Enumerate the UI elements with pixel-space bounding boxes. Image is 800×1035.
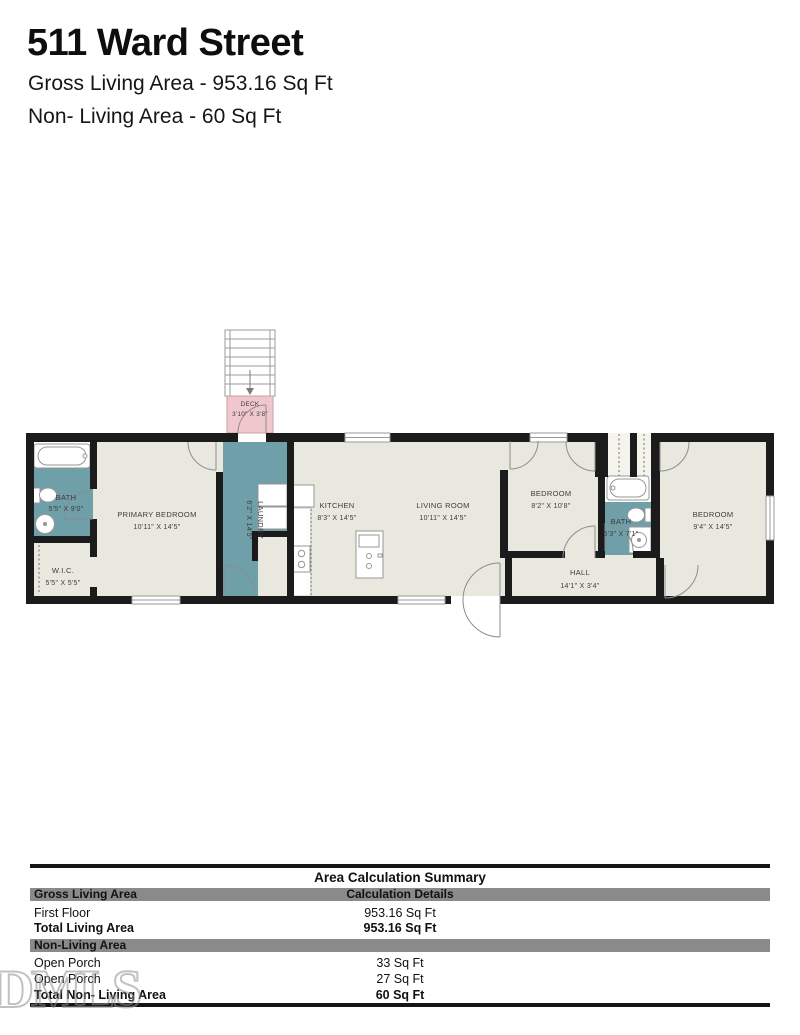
room-label-deck: DECK — [241, 401, 260, 408]
sink-icon — [36, 515, 55, 534]
table-row-total-living: Total Living Area 953.16 Sq Ft — [30, 921, 770, 935]
room-label-bath-1: BATH — [56, 493, 77, 502]
room-label-bath-2: BATH — [611, 517, 632, 526]
window — [766, 496, 774, 540]
window — [132, 596, 180, 604]
room-label-primary-bedroom: PRIMARY BEDROOM — [117, 510, 196, 519]
room-label-living-room: LIVING ROOM — [416, 501, 469, 510]
table-row: First Floor 953.16 Sq Ft — [30, 906, 770, 920]
row-label: Total Living Area — [34, 921, 134, 935]
row-label: Open Porch — [34, 956, 101, 970]
window — [345, 433, 390, 442]
room-dims-bath-2: 5'3" X 7'1" — [603, 531, 638, 538]
room-dims-laundry: 6'2" X 14'5" — [245, 500, 252, 539]
row-value: 27 Sq Ft — [376, 972, 423, 986]
row-label: First Floor — [34, 906, 90, 920]
kitchen-counter — [293, 508, 311, 596]
table-bottom-rule — [30, 1003, 770, 1007]
room-dims-deck: 3'10" X 3'8" — [232, 411, 268, 418]
row-label: Total Non- Living Area — [34, 988, 166, 1002]
room-dims-primary-bedroom: 10'11" X 14'5" — [133, 524, 180, 531]
section-header-gross-living-area: Gross Living Area Calculation Details — [30, 888, 770, 901]
room-label-bedroom-middle: BEDROOM — [531, 489, 572, 498]
calculation-details-header: Calculation Details — [346, 888, 453, 901]
window — [530, 433, 567, 442]
room-dims-bedroom-right: 9'4" X 14'5" — [693, 524, 732, 531]
room-dims-hall: 14'1" X 3'4" — [560, 583, 599, 590]
row-label: Open Porch — [34, 972, 101, 986]
table-row: Open Porch 33 Sq Ft — [30, 956, 770, 970]
row-value: 953.16 Sq Ft — [364, 921, 437, 935]
bathtub-icon — [34, 444, 90, 468]
kitchen-island-icon — [356, 531, 383, 578]
fridge-icon — [293, 485, 314, 507]
table-title: Area Calculation Summary — [30, 870, 770, 885]
room-label-wic: W.I.C. — [52, 566, 74, 575]
room-label-hall: HALL — [570, 568, 590, 577]
room-dims-kitchen: 8'3" X 14'5" — [317, 515, 356, 522]
room-label-bedroom-right: BEDROOM — [693, 510, 734, 519]
room-dims-living-room: 10'11" X 14'5" — [419, 515, 466, 522]
section-header-label: Gross Living Area — [34, 888, 137, 901]
bathtub-2-icon — [607, 476, 649, 500]
table-row: Open Porch 27 Sq Ft — [30, 972, 770, 986]
stairs — [225, 330, 275, 396]
window — [398, 596, 445, 604]
row-value: 60 Sq Ft — [376, 988, 425, 1002]
section-header-non-living-area: Non-Living Area — [30, 939, 770, 952]
room-label-kitchen: KITCHEN — [319, 501, 354, 510]
table-top-rule — [30, 864, 770, 868]
area-calculation-summary-table: Area Calculation Summary Gross Living Ar… — [30, 862, 770, 1012]
table-row-total-non-living: Total Non- Living Area 60 Sq Ft — [30, 988, 770, 1002]
room-dims-bath-1: 5'5" X 9'0" — [48, 506, 83, 513]
row-value: 33 Sq Ft — [376, 956, 423, 970]
toilet-icon — [33, 488, 57, 503]
room-dims-wic: 5'5" X 5'5" — [45, 580, 80, 587]
section-header-label: Non-Living Area — [34, 939, 126, 952]
row-value: 953.16 Sq Ft — [364, 906, 436, 920]
room-dims-bedroom-middle: 8'2" X 10'8" — [531, 503, 570, 510]
room-label-laundry: LAUNDRY — [256, 501, 265, 539]
